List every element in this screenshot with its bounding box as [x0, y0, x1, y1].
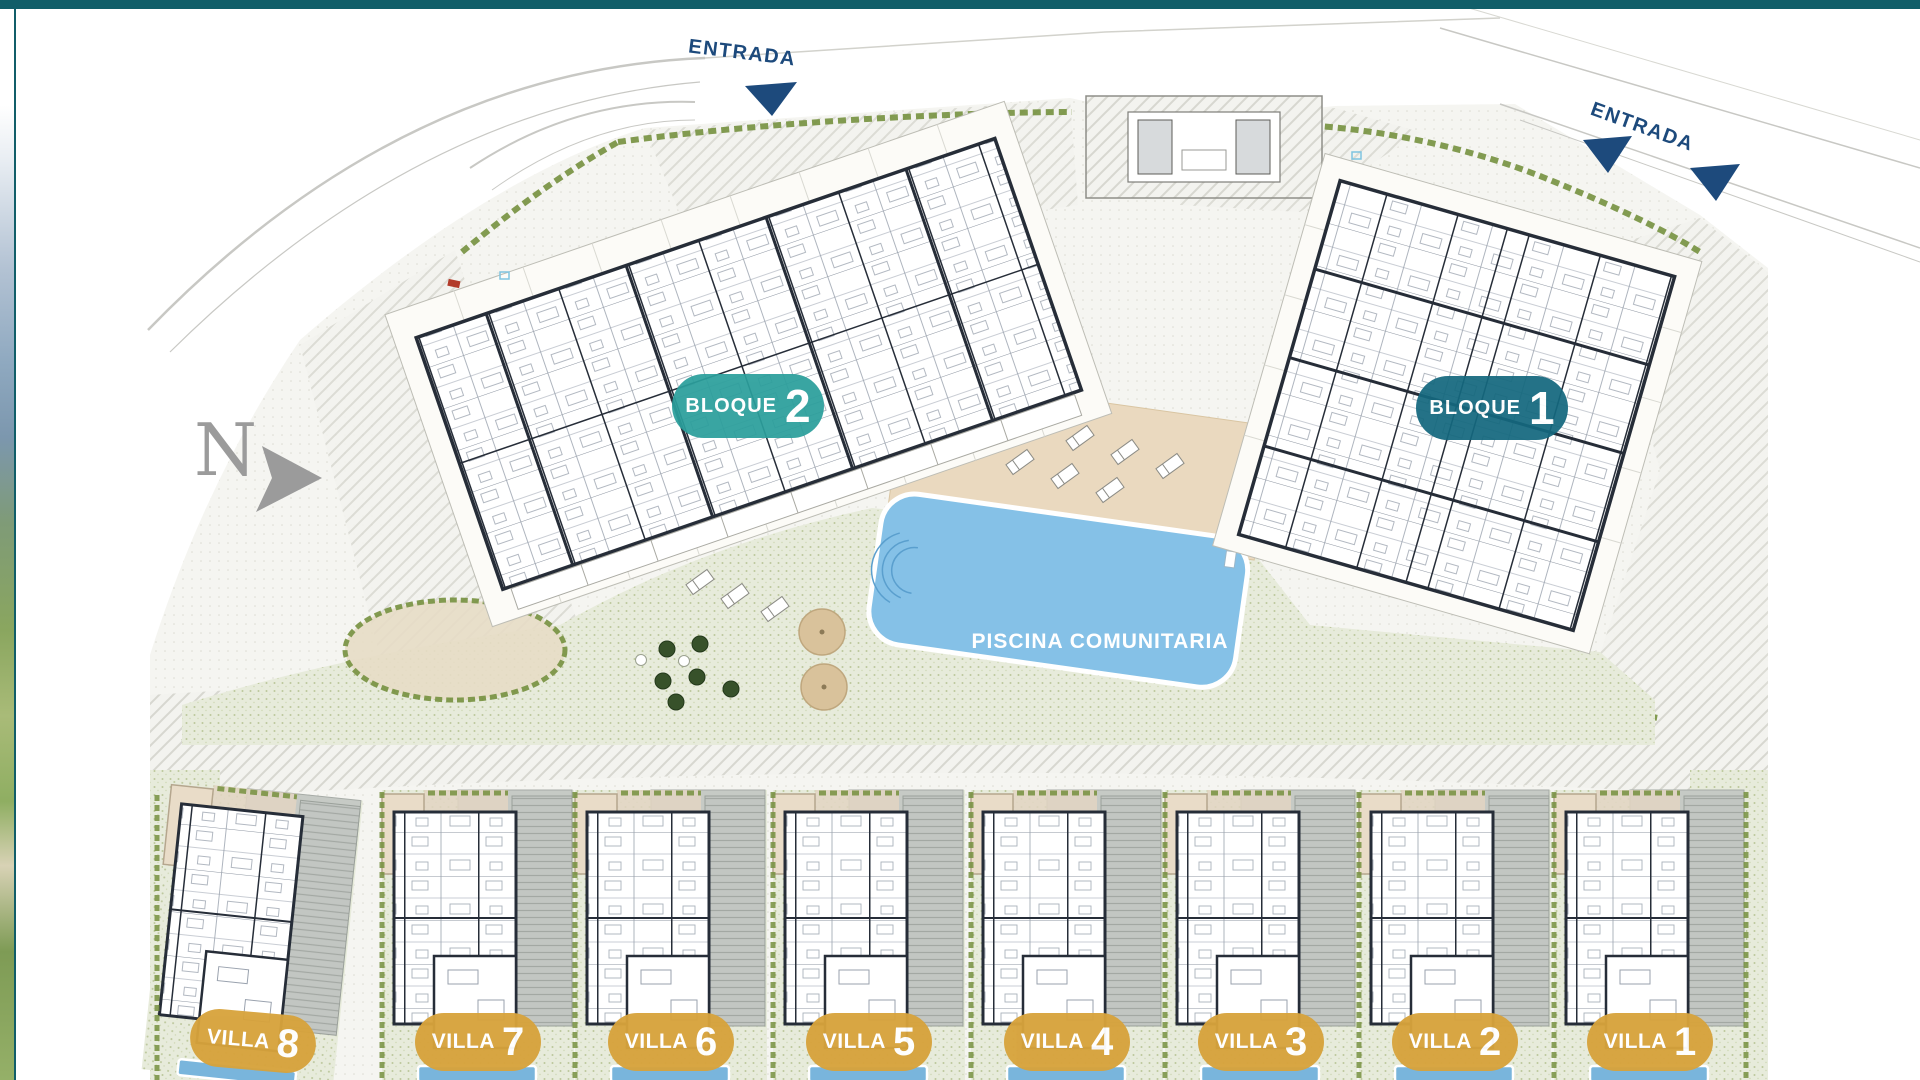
villa-4-badge[interactable]: VILLA 4 — [1004, 1013, 1130, 1071]
bloque-2-word: BLOQUE — [685, 395, 777, 418]
bloque-2-number: 2 — [785, 379, 811, 433]
villa-1-word: VILLA — [1604, 1030, 1667, 1054]
site-plan-page: ENTRADA ENTRADA N BLOQUE 2 BLOQUE 1 PISC… — [0, 0, 1920, 1080]
bloque-1-number: 1 — [1529, 381, 1555, 435]
villa-2-badge[interactable]: VILLA 2 — [1392, 1013, 1518, 1071]
villa-6-number: 6 — [695, 1020, 717, 1065]
lawn-mound — [345, 600, 565, 700]
site-plan-drawing — [0, 0, 1920, 1080]
villas-row — [141, 770, 1768, 1080]
aerial-photo-edge — [0, 9, 16, 1080]
villa-8-word: VILLA — [206, 1025, 271, 1054]
villa-1-number: 1 — [1674, 1020, 1696, 1065]
villa-5-number: 5 — [893, 1020, 915, 1065]
villa-3-badge[interactable]: VILLA 3 — [1198, 1013, 1324, 1071]
bloque-1-badge[interactable]: BLOQUE 1 — [1416, 376, 1568, 440]
bloque-1-word: BLOQUE — [1429, 397, 1521, 420]
villa-2-number: 2 — [1479, 1020, 1501, 1065]
villa-5-badge[interactable]: VILLA 5 — [806, 1013, 932, 1071]
villa-4-number: 4 — [1091, 1020, 1113, 1065]
bloque-2-badge[interactable]: BLOQUE 2 — [672, 374, 824, 438]
villa-5-word: VILLA — [823, 1030, 886, 1054]
villa-7-word: VILLA — [432, 1030, 495, 1054]
villa-1-badge[interactable]: VILLA 1 — [1587, 1013, 1713, 1071]
villa-6-word: VILLA — [625, 1030, 688, 1054]
pool-label: PISCINA COMUNITARIA — [950, 630, 1250, 654]
villa-3-number: 3 — [1285, 1020, 1307, 1065]
entrance-gate — [1086, 96, 1322, 198]
villa-6-badge[interactable]: VILLA 6 — [608, 1013, 734, 1071]
villa-7-badge[interactable]: VILLA 7 — [415, 1013, 541, 1071]
villa-8-number: 8 — [275, 1021, 301, 1068]
villa-4-word: VILLA — [1021, 1030, 1084, 1054]
villa-2-word: VILLA — [1409, 1030, 1472, 1054]
north-label: N — [194, 414, 257, 486]
entrance-arrow-icon — [745, 82, 797, 116]
villa-3-word: VILLA — [1215, 1030, 1278, 1054]
villa-7-number: 7 — [502, 1020, 524, 1065]
top-accent-bar — [0, 0, 1920, 9]
